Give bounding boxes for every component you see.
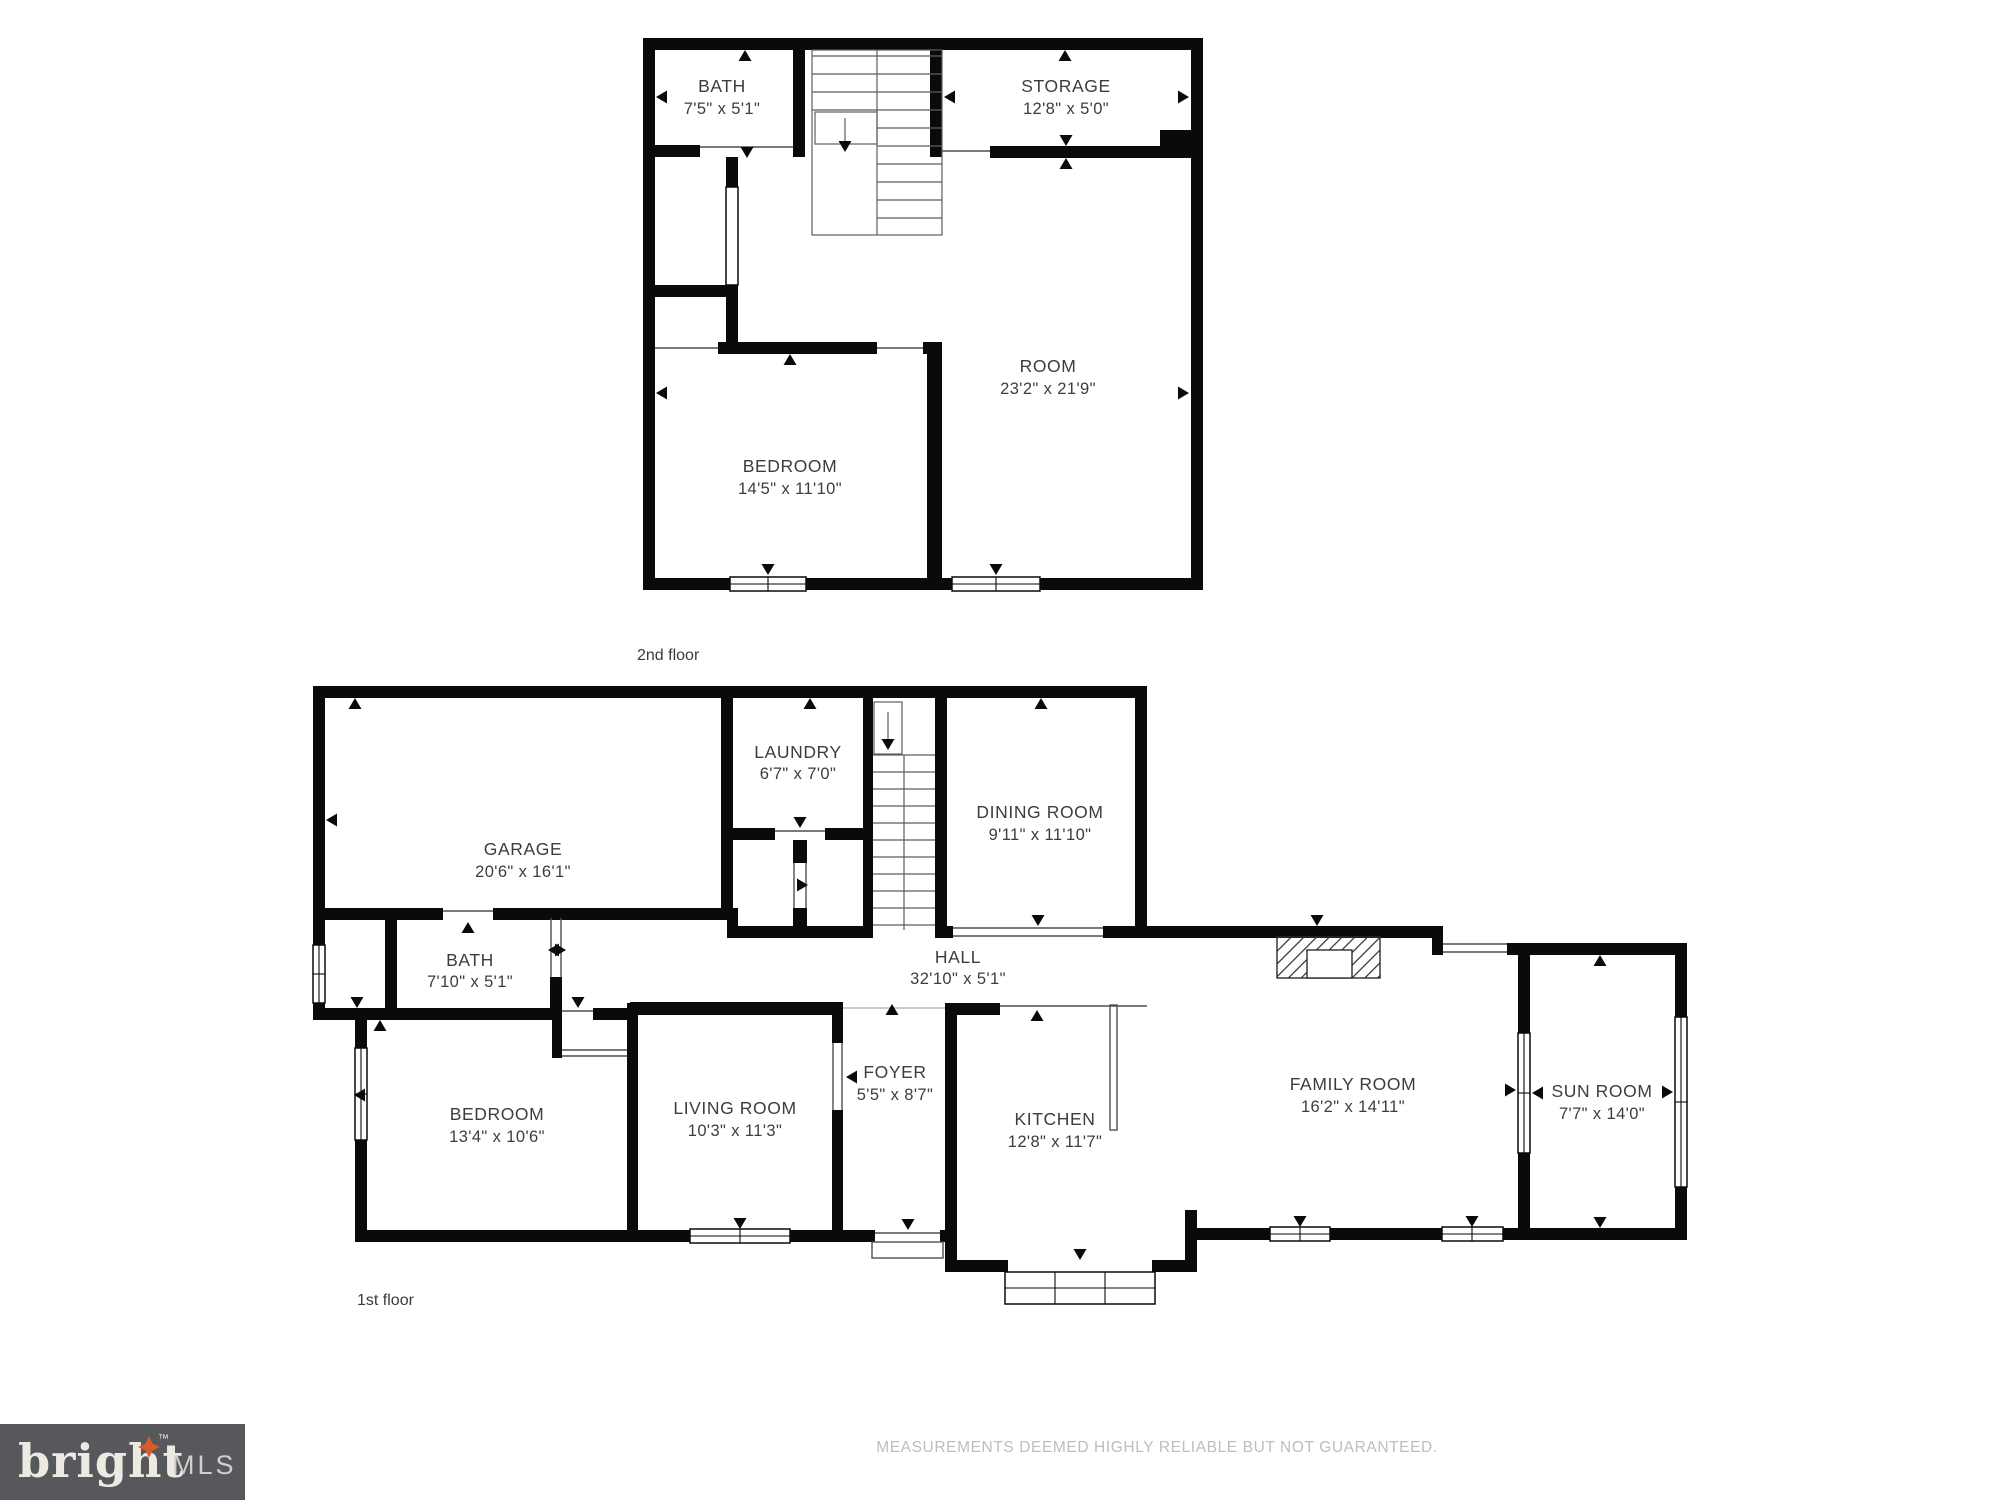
windows-1st-floor — [313, 945, 1687, 1304]
room-label-room: ROOM — [1020, 356, 1077, 376]
room-label-family: FAMILY ROOM — [1290, 1074, 1417, 1094]
window-icon — [1518, 1033, 1530, 1153]
logo-suffix: MLS — [172, 1450, 237, 1480]
room-dims-bath-2f: 7'5" x 5'1" — [684, 100, 761, 118]
staircase-icon-2nd-floor — [812, 50, 942, 235]
closet-bifold-door — [726, 187, 738, 285]
room-label-sunroom: SUN ROOM — [1551, 1081, 1652, 1101]
kitchen-counter-peninsula — [1110, 1005, 1117, 1130]
front-door-opening — [875, 1230, 940, 1242]
door-openings-2nd-floor — [655, 147, 990, 348]
room-dims-sunroom: 7'7" x 14'0" — [1559, 1105, 1645, 1123]
window-icon — [1270, 1227, 1330, 1241]
logo-trademark: ™ — [158, 1433, 169, 1445]
floor-plan-2nd-floor: BATH 7'5" x 5'1" STORAGE 12'8" x 5'0" RO… — [637, 38, 1203, 664]
room-label-storage: STORAGE — [1021, 76, 1110, 96]
window-icon — [313, 945, 325, 1003]
staircase-icon-1st-floor — [873, 702, 935, 930]
window-icon — [690, 1229, 790, 1243]
room-label-dining: DINING ROOM — [976, 802, 1103, 822]
room-dims-garage: 20'6" x 16'1" — [475, 863, 571, 881]
room-label-bath-1f: BATH — [446, 950, 494, 970]
floor-caption-2nd: 2nd floor — [637, 647, 700, 664]
bay-window-icon — [1005, 1260, 1155, 1304]
room-label-living: LIVING ROOM — [673, 1098, 796, 1118]
floor-caption-1st: 1st floor — [357, 1292, 415, 1309]
room-dims-kitchen: 12'8" x 11'7" — [1008, 1133, 1102, 1151]
room-dims-storage: 12'8" x 5'0" — [1023, 100, 1109, 118]
footer: bright ™ MLS MEASUREMENTS DEEMED HIGHLY … — [0, 1424, 1438, 1500]
room-label-garage: GARAGE — [484, 839, 562, 859]
room-label-laundry: LAUNDRY — [754, 742, 842, 762]
room-dims-bedroom-2f: 14'5" x 11'10" — [738, 480, 842, 498]
room-dims-bath-1f: 7'10" x 5'1" — [427, 973, 513, 991]
stair-down-arrow-icon — [882, 739, 895, 750]
room-label-kitchen: KITCHEN — [1014, 1109, 1095, 1129]
room-label-bedroom-1f: BEDROOM — [450, 1104, 545, 1124]
room-dims-living: 10'3" x 11'3" — [688, 1122, 782, 1140]
room-dims-foyer: 5'5" x 8'7" — [857, 1086, 934, 1104]
room-dims-family: 16'2" x 14'11" — [1301, 1098, 1405, 1116]
chimney-block — [1160, 130, 1191, 158]
floor-plan-1st-floor: GARAGE 20'6" x 16'1" LAUNDRY 6'7" x 7'0"… — [313, 686, 1687, 1309]
room-dims-laundry: 6'7" x 7'0" — [760, 765, 837, 783]
fireplace-icon — [1277, 937, 1380, 978]
floor-plan-page: BATH 7'5" x 5'1" STORAGE 12'8" x 5'0" RO… — [0, 0, 2000, 1500]
window-icon — [730, 577, 806, 591]
room-label-foyer: FOYER — [863, 1062, 926, 1082]
room-label-bedroom-2f: BEDROOM — [743, 456, 838, 476]
room-dims-hall: 32'10" x 5'1" — [910, 970, 1006, 988]
room-dims-dining: 9'11" x 11'10" — [989, 826, 1092, 844]
stair-down-arrow-icon — [839, 141, 852, 152]
disclaimer-text: MEASUREMENTS DEEMED HIGHLY RELIABLE BUT … — [876, 1439, 1438, 1456]
window-icon — [1675, 1017, 1687, 1187]
room-dims-bedroom-1f: 13'4" x 10'6" — [449, 1128, 545, 1146]
front-stoop — [872, 1242, 943, 1258]
window-icon — [952, 577, 1040, 591]
walls-2nd-floor — [643, 38, 1203, 590]
room-dims-room: 23'2" x 21'9" — [1000, 380, 1096, 398]
room-label-bath-2f: BATH — [698, 76, 746, 96]
window-icon — [1442, 1227, 1503, 1241]
floor-plan-canvas: BATH 7'5" x 5'1" STORAGE 12'8" x 5'0" RO… — [0, 0, 2000, 1500]
room-label-hall: HALL — [935, 947, 981, 967]
